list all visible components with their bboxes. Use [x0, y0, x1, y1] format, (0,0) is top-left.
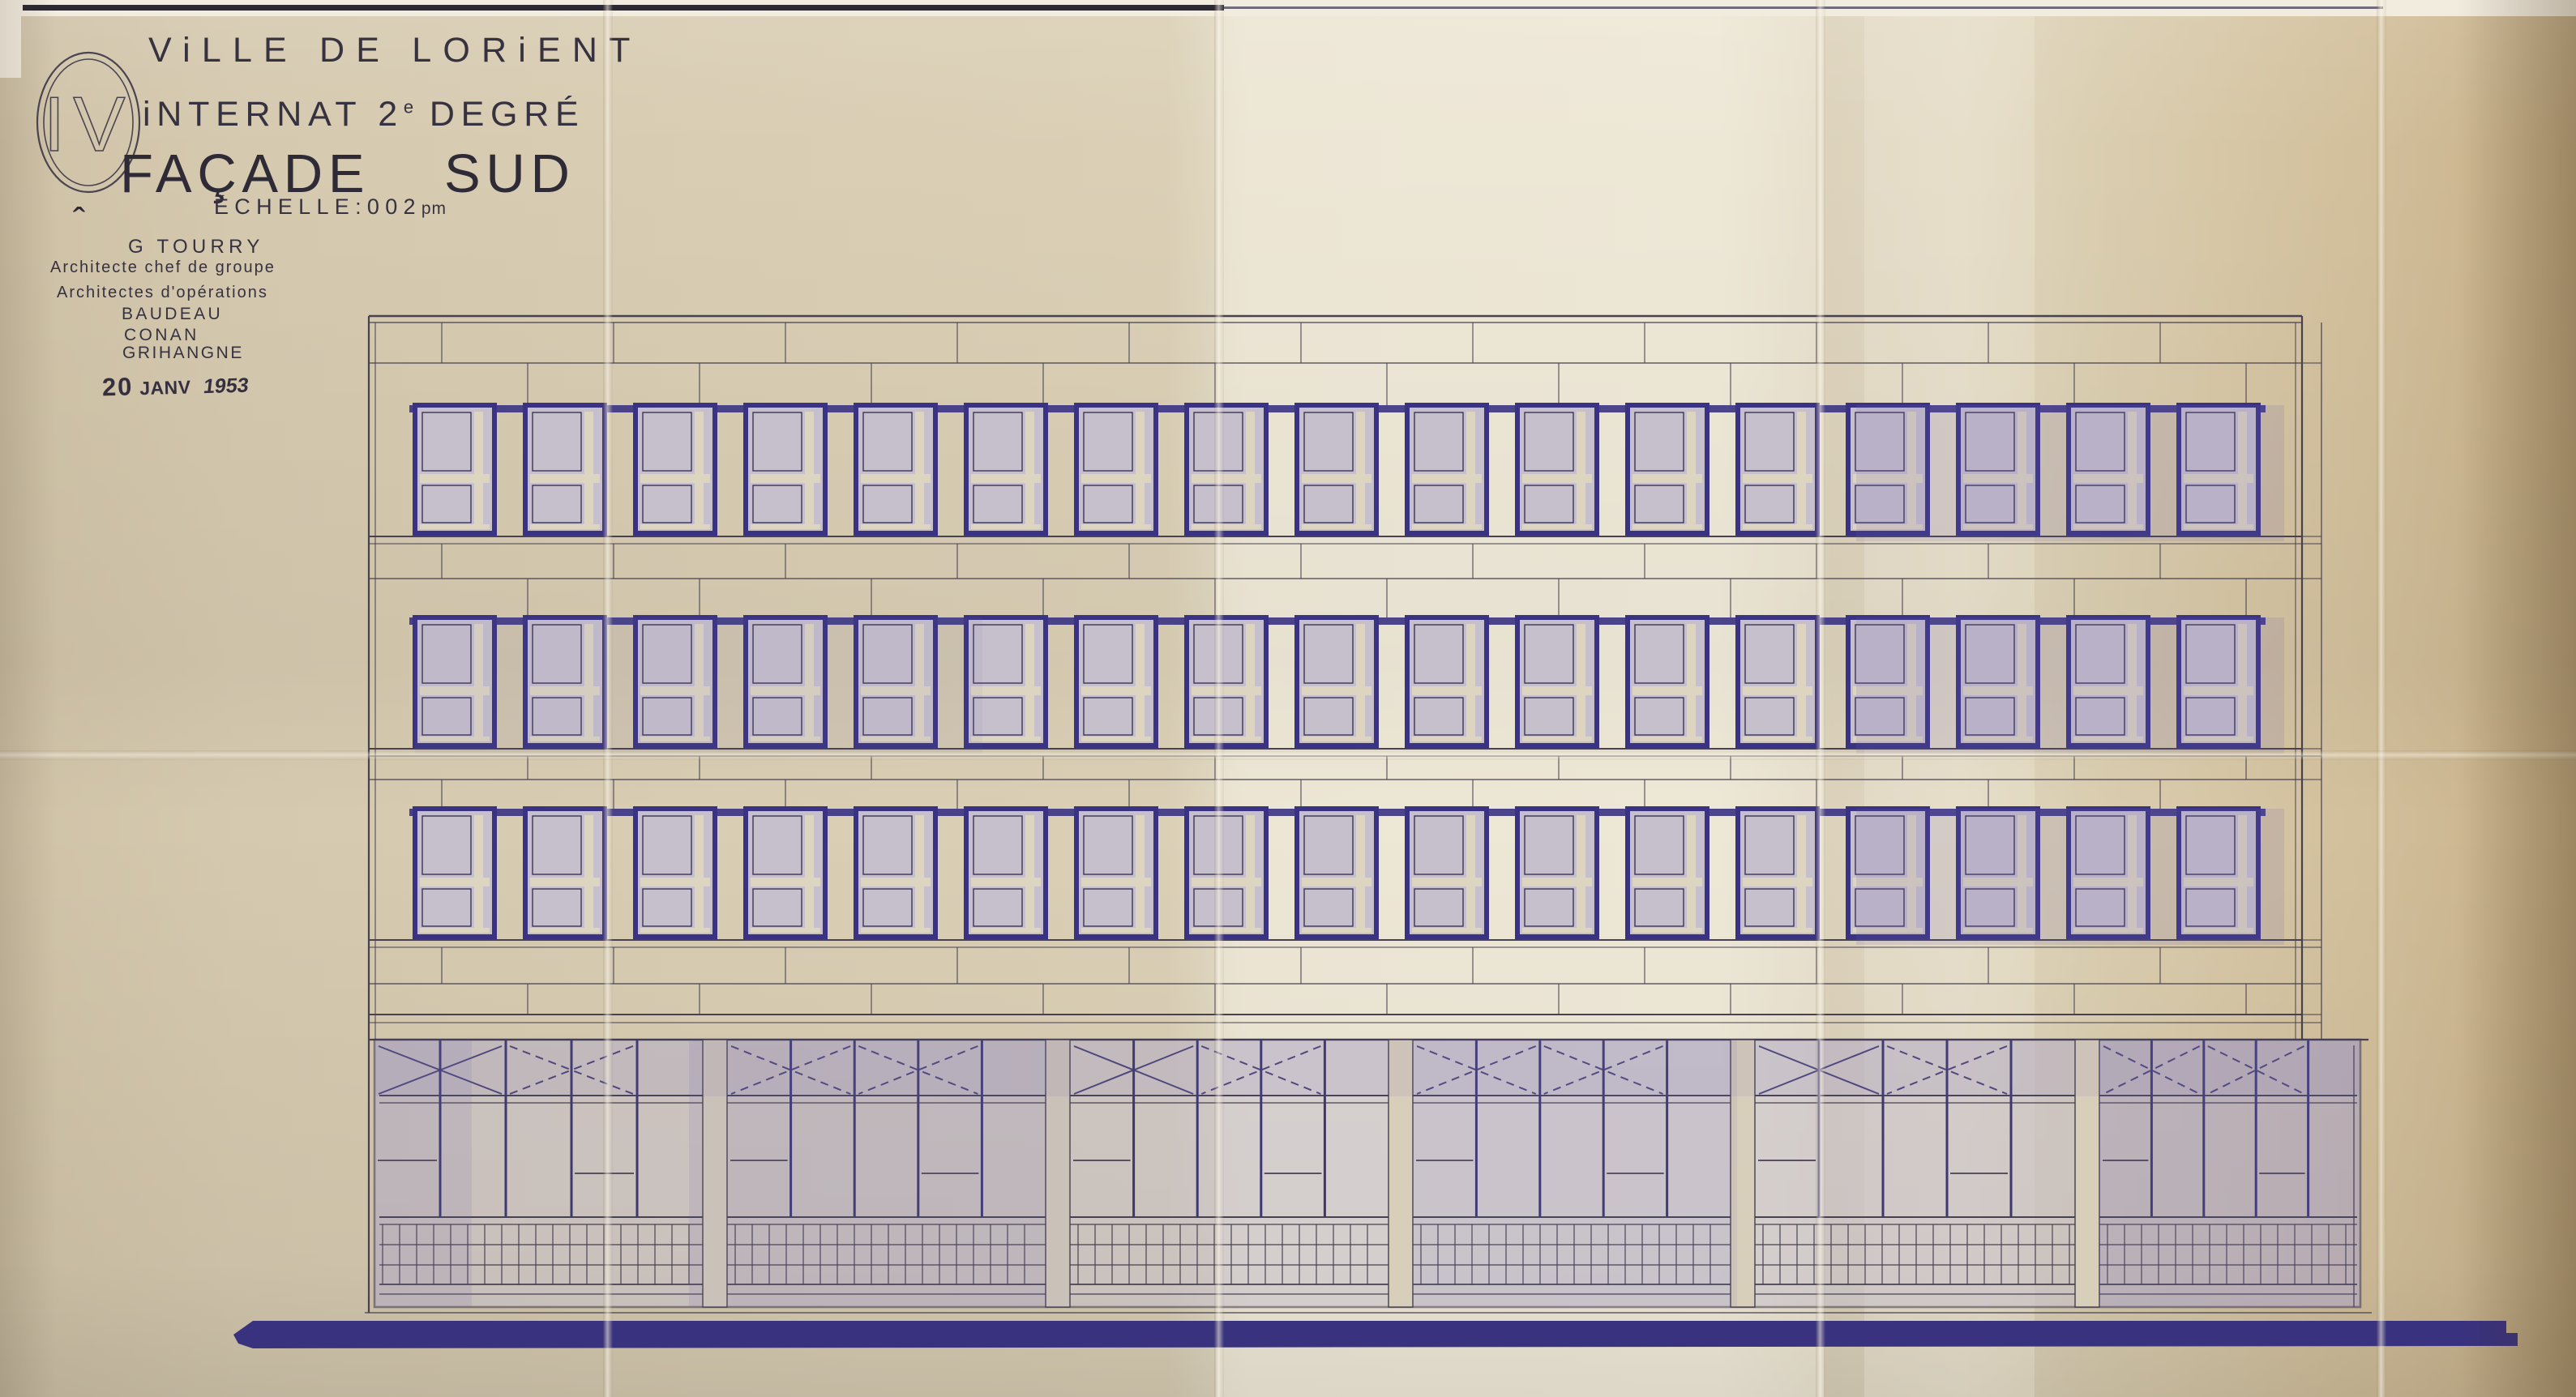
drawing-title-word2: SUD — [444, 143, 576, 205]
window — [415, 809, 494, 937]
project-name: iNTERNAT 2e DEGRÉ — [143, 95, 584, 135]
window — [635, 809, 715, 937]
window — [856, 809, 935, 937]
architect-name-baudeau: BAUDEAU — [122, 305, 223, 324]
project-city: ViLLE DE LORiENT — [148, 31, 642, 70]
window — [1297, 405, 1376, 533]
window — [1738, 405, 1817, 533]
window — [1076, 617, 1156, 745]
window — [966, 809, 1046, 937]
project-name-suffix: DEGRÉ — [413, 95, 584, 134]
window — [1187, 405, 1266, 533]
scale-unit: pm — [421, 199, 447, 218]
architect-name-conan: CONAN — [124, 326, 199, 345]
window — [966, 405, 1046, 533]
window — [1076, 809, 1156, 937]
pencil-mark: ˆ — [73, 199, 85, 243]
window — [1738, 809, 1817, 937]
window — [1297, 617, 1376, 745]
architects-ops-role: Architectes d'opérations — [57, 284, 268, 302]
window — [856, 405, 935, 533]
window — [1517, 809, 1597, 937]
window — [1187, 809, 1266, 937]
window — [1628, 405, 1707, 533]
window — [746, 809, 825, 937]
window — [1407, 809, 1487, 937]
scale-note: ÉCHELLE:002pm — [214, 194, 447, 220]
scale-value: 002 — [367, 194, 421, 219]
window — [415, 405, 494, 533]
architect-chief-role: Architecte chef de groupe — [50, 258, 276, 277]
window — [1517, 617, 1597, 745]
window — [1187, 617, 1266, 745]
date-month: JANV — [139, 377, 191, 399]
blueprint-sheet: IV ViLLE DE LORiENT iNTERNAT 2e DEGRÉ FA… — [0, 0, 2576, 1397]
window — [525, 809, 605, 937]
window — [1628, 809, 1707, 937]
architect-chief-name: G TOURRY — [128, 236, 264, 258]
window — [1076, 405, 1156, 533]
scale-label: ÉCHELLE: — [214, 194, 367, 219]
date-year: 1953 — [203, 374, 250, 399]
window — [1517, 405, 1597, 533]
date-day: 20 — [102, 372, 134, 401]
window — [746, 405, 825, 533]
ground-line — [233, 1321, 2518, 1348]
window — [1628, 617, 1707, 745]
window — [1407, 617, 1487, 745]
project-name-prefix: iNTERNAT 2 — [143, 95, 404, 134]
window — [1738, 617, 1817, 745]
window — [1297, 809, 1376, 937]
date-stamp: 20JANV1953 — [102, 370, 250, 403]
window — [1407, 405, 1487, 533]
window — [635, 405, 715, 533]
window — [525, 405, 605, 533]
architect-name-grihangne: GRIHANGNE — [122, 344, 244, 363]
project-name-sup: e — [404, 97, 413, 117]
